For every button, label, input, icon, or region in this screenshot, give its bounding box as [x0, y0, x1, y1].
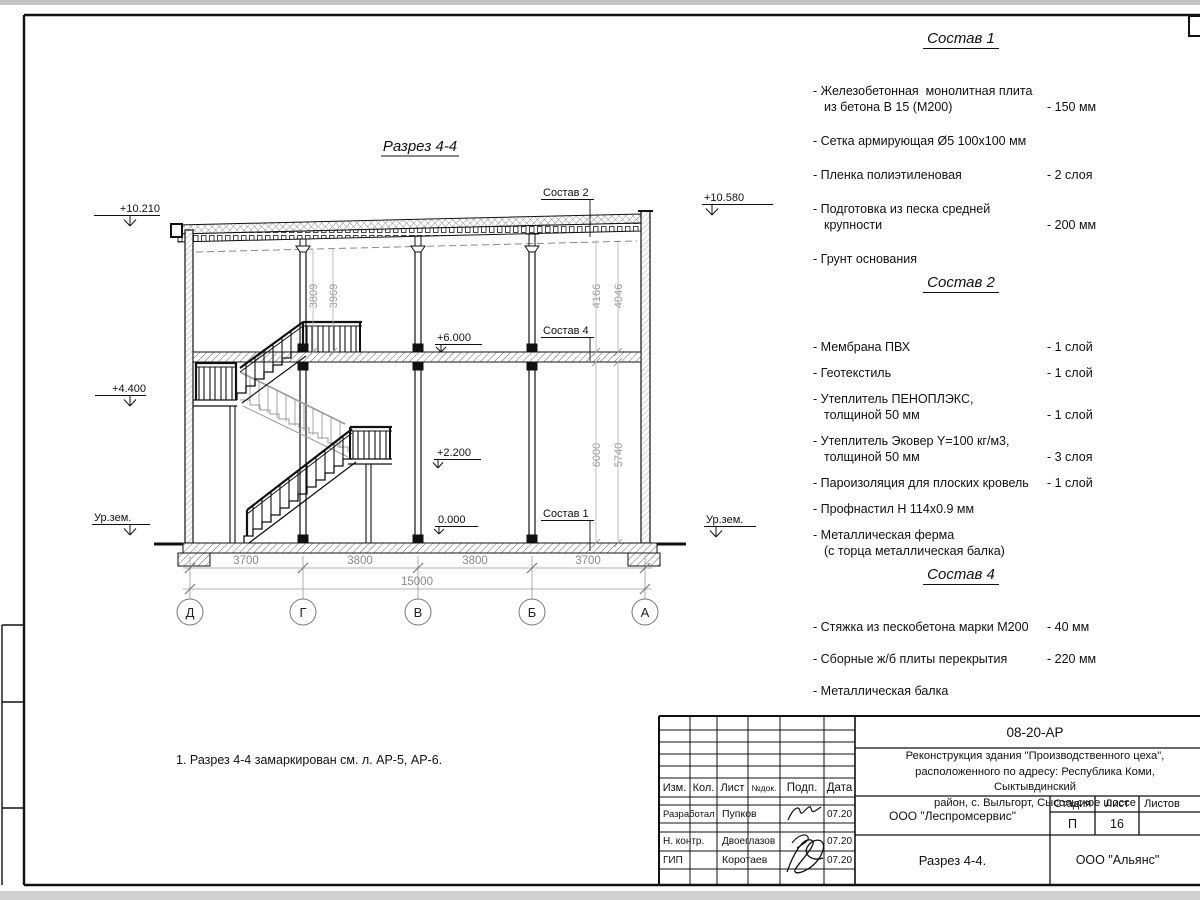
- signature-nkontr: [792, 835, 808, 848]
- composition-item: - Грунт основания: [813, 251, 1109, 267]
- column-V: [411, 246, 425, 543]
- composition-item: - Мембрана ПВХ- 1 слой: [813, 339, 1109, 355]
- elevation-ground-left: Ур.зем.: [92, 512, 150, 535]
- composition-1-title: Состав 1: [813, 30, 1109, 49]
- grid-axis-bubbles: Д Г В Б А: [177, 599, 658, 625]
- drawing-sheet: Разрез 4-4: [0, 0, 1200, 900]
- axis-B: Б: [528, 605, 537, 620]
- axis-V: В: [414, 605, 423, 620]
- composition-item: - Профнастил Н 114x0.9 мм: [813, 501, 1109, 517]
- composition-item: - Пленка полиэтиленовая- 2 слоя: [813, 167, 1109, 183]
- vertical-dimensions: 3809 3969 4166 4046 6000 5740: [308, 240, 625, 547]
- elevation-roof-right: +10.580: [702, 192, 773, 215]
- col-podp: Подп.: [780, 778, 824, 797]
- svg-text:+2.200: +2.200: [437, 447, 471, 459]
- sheet-number: 16: [1095, 812, 1139, 835]
- svg-text:0.000: 0.000: [438, 514, 466, 526]
- axis-G: Г: [299, 605, 306, 620]
- corner-reference-box: [1189, 16, 1200, 36]
- col-ndok: №док.: [748, 778, 780, 797]
- composition-item: - Подготовка из песка средней крупности-…: [813, 201, 1109, 233]
- dim-4166: 4166: [591, 284, 603, 308]
- axis-A: А: [641, 605, 650, 620]
- col-izm: Изм.: [659, 778, 690, 797]
- document-code: 08-20-АР: [855, 718, 1200, 746]
- row-role-gip: ГИП: [660, 851, 717, 869]
- row-date-2: 07.20: [824, 832, 855, 851]
- composition-2: Состав 2 - Мембрана ПВХ- 1 слой - Геотек…: [813, 274, 1109, 559]
- row-name-pupkov: Пупков: [719, 805, 779, 823]
- stage-value: П: [1050, 812, 1095, 835]
- row-date-1: 07.20: [824, 805, 855, 823]
- row-role-razrabotal: Разработал: [660, 805, 717, 823]
- elevation-roof-left: +10.210: [94, 203, 160, 226]
- svg-text:Ур.зем.: Ур.зем.: [706, 514, 743, 526]
- elevation-floor2: +6.000: [435, 332, 482, 352]
- composition-item: - Пароизоляция для плоских кровель- 1 сл…: [813, 475, 1109, 491]
- designer-org: ООО "Леспромсервис": [856, 796, 1049, 835]
- roof-edge-cap: [171, 224, 182, 237]
- svg-text:+4.400: +4.400: [112, 383, 146, 395]
- section-view-title: Разрез 4-4: [383, 138, 457, 155]
- svg-text:Состав 1: Состав 1: [543, 508, 589, 520]
- dim-span-1: 3700: [233, 555, 259, 567]
- composition-1: Состав 1 - Железобетонная монолитная пли…: [813, 30, 1109, 267]
- composition-4-title: Состав 4: [813, 566, 1109, 585]
- composition-item: - Железобетонная монолитная плита из бет…: [813, 83, 1109, 115]
- composition-item: - Геотекстиль- 1 слой: [813, 365, 1109, 381]
- sheet-label: Лист: [1095, 796, 1139, 812]
- svg-text:+10.580: +10.580: [704, 192, 744, 204]
- landing-upper: [193, 363, 237, 543]
- composition-2-title: Состав 2: [813, 274, 1109, 293]
- dim-span-3: 3800: [462, 555, 488, 567]
- building-section: Разрез 4-4: [92, 138, 773, 625]
- composition-item: - Сетка армирующая Ø5 100x100 мм: [813, 133, 1109, 149]
- composition-item: - Утеплитель Эковер Y=100 кг/м3, толщино…: [813, 433, 1109, 465]
- stage-label: Стадия: [1050, 796, 1095, 812]
- composition-item: - Стяжка из пескобетона марки М200- 40 м…: [813, 619, 1109, 635]
- svg-text:Состав 4: Состав 4: [543, 325, 589, 337]
- svg-text:+10.210: +10.210: [120, 203, 160, 215]
- row-name-korotaev: Коротаев: [719, 851, 780, 869]
- elevation-ground-floor: 0.000: [434, 514, 478, 534]
- dim-span-4: 3700: [575, 555, 601, 567]
- column-B: [525, 246, 539, 543]
- left-wall: [185, 230, 193, 543]
- dim-3969: 3969: [328, 284, 340, 308]
- composition-item: - Металлическая ферма (с торца металличе…: [813, 527, 1109, 559]
- col-data: Дата: [824, 778, 855, 797]
- sheets-label: Листов: [1139, 796, 1185, 812]
- composition-4: Состав 4 - Стяжка из пескобетона марки М…: [813, 566, 1109, 699]
- row-date-3: 07.20: [824, 851, 855, 869]
- roof-assembly: [171, 214, 641, 253]
- landing-lower: [348, 427, 392, 543]
- elevation-marks: +10.210 +10.580 +4.400 Ур.зем. Ур.зем.: [92, 192, 773, 537]
- row-name-dvoeglazov: Двоеглазов: [719, 832, 780, 851]
- dim-span-2: 3800: [347, 555, 373, 567]
- floor-guard-rail: [303, 322, 362, 352]
- dim-3809: 3809: [308, 284, 320, 308]
- axis-D: Д: [186, 605, 195, 620]
- elevation-landing-lower: +2.200: [433, 447, 481, 468]
- col-list: Лист: [717, 778, 748, 797]
- svg-text:+6.000: +6.000: [437, 332, 471, 344]
- composition-item: - Утеплитель ПЕНОПЛЭКС, толщиной 50 мм- …: [813, 391, 1109, 423]
- right-wall: [641, 211, 650, 543]
- svg-text:Ур.зем.: Ур.зем.: [94, 512, 131, 524]
- svg-text:Состав 2: Состав 2: [543, 187, 589, 199]
- composition-item: - Металлическая балка: [813, 683, 1109, 699]
- customer-org: ООО "Альянс": [1050, 835, 1185, 885]
- row-role-nkontr: Н. контр.: [660, 832, 717, 851]
- composition-item: - Сборные ж/б плиты перекрытия- 220 мм: [813, 651, 1109, 667]
- sheet-title: Разрез 4-4.: [856, 835, 1049, 885]
- dim-total: 15000: [401, 576, 433, 588]
- sheet-note: 1. Разрез 4-4 замаркирован см. л. АР-5, …: [176, 753, 442, 767]
- dim-5740: 5740: [613, 443, 625, 467]
- elevation-landing-upper: +4.400: [95, 383, 146, 406]
- footing-right: [628, 553, 660, 566]
- elevation-ground-right: Ур.зем.: [704, 514, 756, 537]
- bottom-dimensions: 3700 3800 3800 3700 15000 Д Г В: [177, 555, 658, 625]
- signature-gip: [787, 840, 824, 873]
- signature-razrabotal: [788, 807, 821, 820]
- dim-6000: 6000: [591, 443, 603, 467]
- layer-leaders: Состав 2 Состав 4 Состав 1: [541, 187, 594, 551]
- dim-4046: 4046: [613, 284, 625, 308]
- col-kol: Кол.: [690, 778, 717, 797]
- signatures: [787, 807, 824, 873]
